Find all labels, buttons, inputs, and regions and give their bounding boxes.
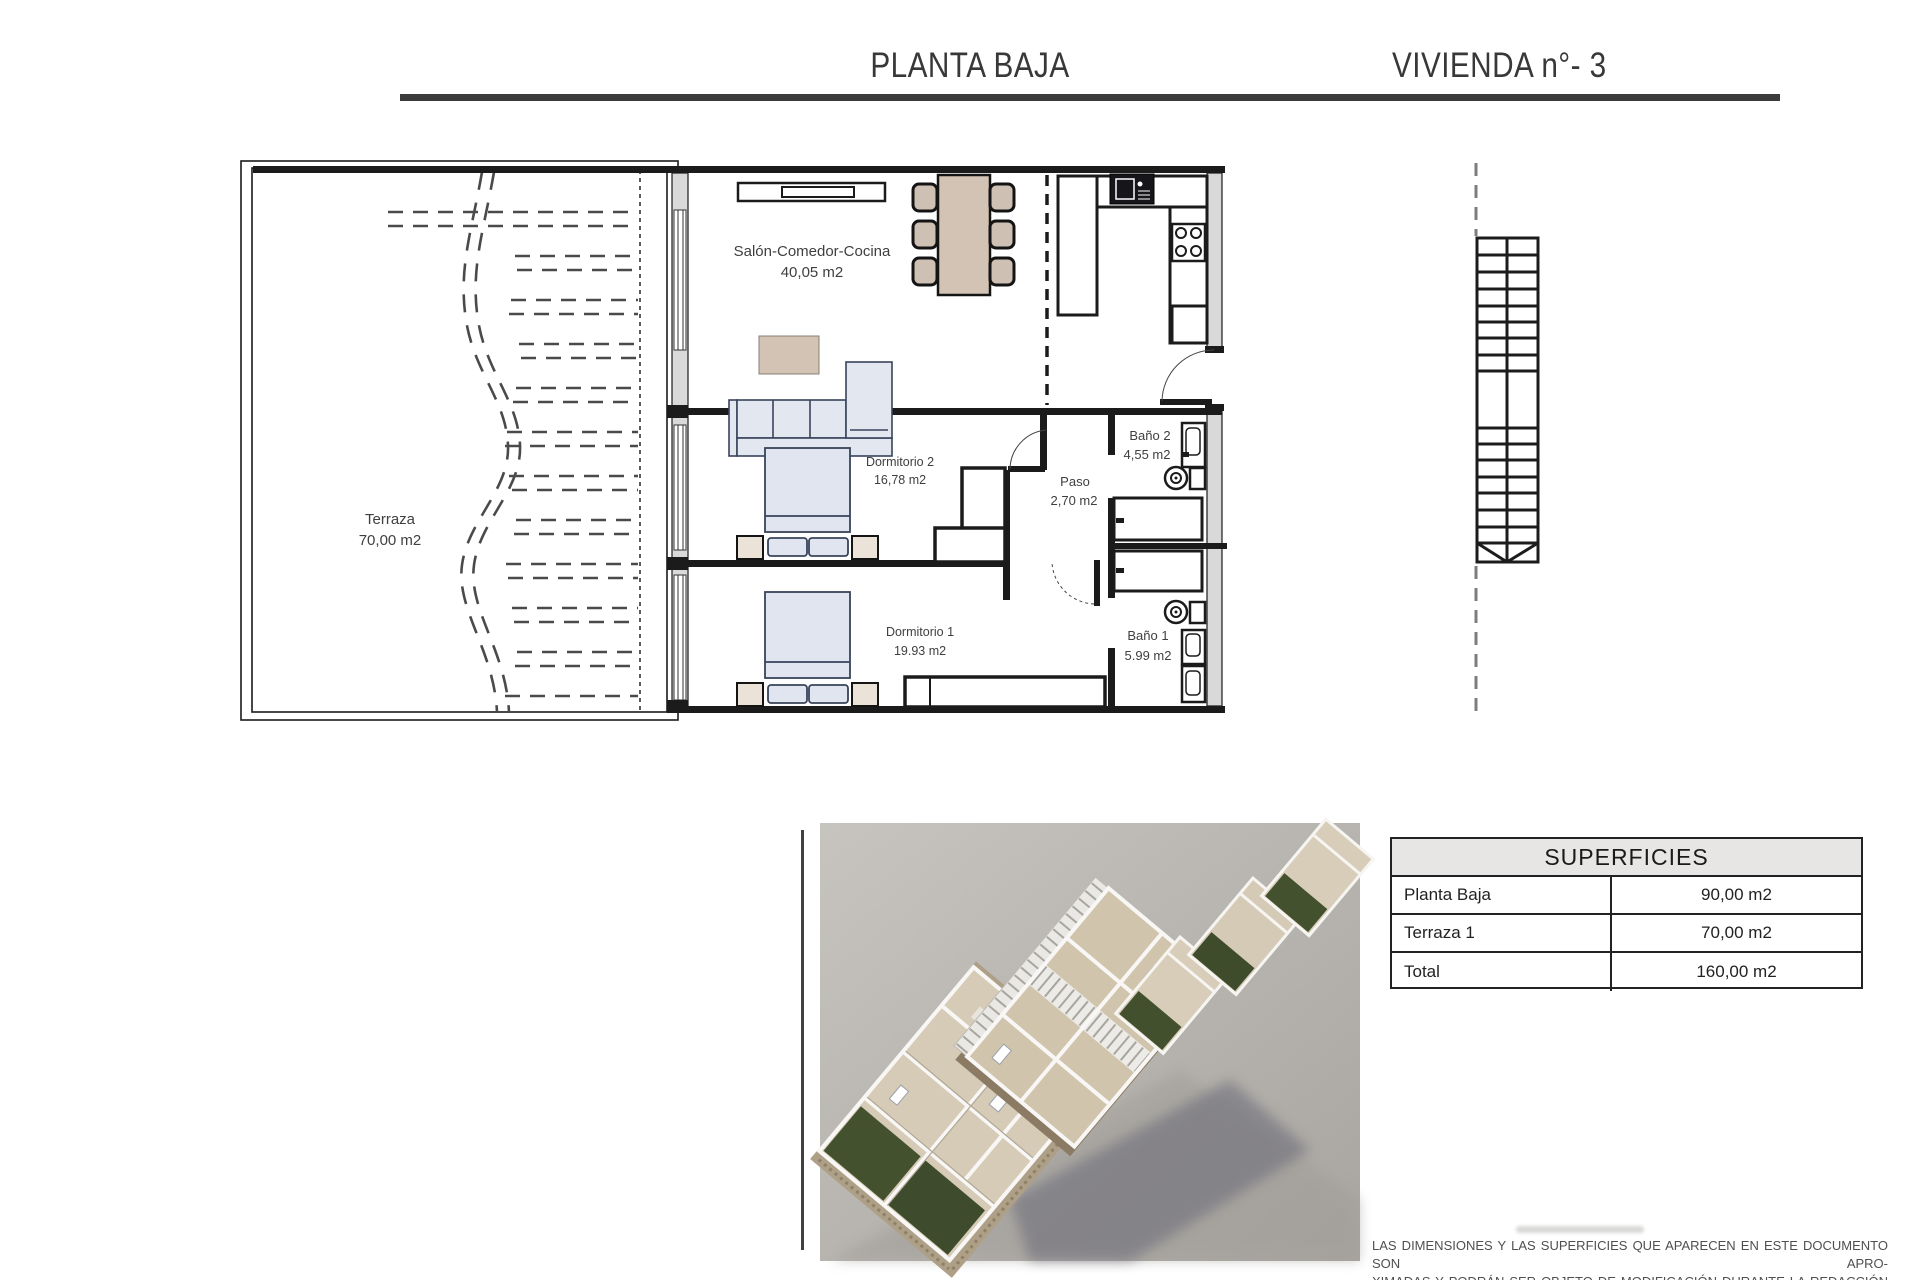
dining-table — [938, 175, 990, 295]
render-left-rule — [801, 830, 804, 1250]
dormitorio2-door — [1008, 466, 1045, 472]
kitchen-door — [1160, 399, 1212, 405]
terraza-room: Terraza 70,00 m2 — [241, 161, 678, 720]
table-row: Planta Baja 90,00 m2 — [1392, 877, 1861, 915]
table-row: Terraza 1 70,00 m2 — [1392, 915, 1861, 953]
disclaimer-line: LAS DIMENSIONES Y LAS SUPERFICIES QUE AP… — [1372, 1237, 1888, 1273]
faded-text-artifact — [1516, 1226, 1644, 1233]
render-illustration — [810, 796, 1373, 1278]
table-row: Total 160,00 m2 — [1392, 953, 1861, 991]
row-label: Planta Baja — [1392, 877, 1612, 913]
window-left-facade — [674, 210, 686, 700]
nightstand — [737, 536, 763, 559]
sofa — [729, 362, 892, 456]
coffee-table — [759, 336, 819, 374]
bano2-label: Baño 2 — [1129, 428, 1170, 443]
dormitorio1-room: Dormitorio 1 19.93 m2 — [737, 592, 1105, 707]
floor-plan-drawing: Terraza 70,00 m2 — [0, 0, 1920, 1280]
toilet-bano2 — [1165, 467, 1205, 489]
disclaimer-text: LAS DIMENSIONES Y LAS SUPERFICIES QUE AP… — [1372, 1237, 1888, 1280]
stove — [1172, 224, 1205, 261]
row-value: 70,00 m2 — [1612, 915, 1861, 951]
dormitorio2-label: Dormitorio 2 — [866, 455, 934, 469]
salon-label: Salón-Comedor-Cocina — [734, 243, 891, 260]
wardrobe-dormitorio1 — [905, 677, 1105, 707]
toilet-bano1 — [1165, 601, 1205, 623]
bano2-area: 4,55 m2 — [1124, 447, 1171, 462]
dormitorio1-door — [1094, 560, 1100, 606]
terraza-label: Terraza — [365, 511, 416, 528]
paso-label: Paso — [1060, 474, 1090, 489]
dormitorio2-area: 16,78 m2 — [874, 473, 926, 487]
bano1-label: Baño 1 — [1127, 628, 1168, 643]
salon-area: 40,05 m2 — [781, 264, 844, 281]
vanity-bano2 — [1182, 423, 1205, 467]
dormitorio1-area: 19.93 m2 — [894, 644, 946, 658]
paso-area: 2,70 m2 — [1051, 493, 1098, 508]
row-label: Terraza 1 — [1392, 915, 1612, 951]
superficies-table: SUPERFICIES Planta Baja 90,00 m2 Terraza… — [1390, 837, 1863, 989]
bano2-room: Baño 2 4,55 m2 — [1124, 423, 1205, 489]
bed-dormitorio2 — [737, 448, 878, 559]
superficies-table-title: SUPERFICIES — [1392, 839, 1861, 877]
bano1-area: 5.99 m2 — [1125, 648, 1172, 663]
paso-corridor: Paso 2,70 m2 — [1051, 474, 1100, 606]
row-label: Total — [1392, 953, 1612, 991]
nightstand — [852, 683, 878, 706]
terraza-area: 70,00 m2 — [359, 532, 422, 549]
row-value: 90,00 m2 — [1612, 877, 1861, 913]
kitchen-sink — [1110, 174, 1154, 204]
bed-dormitorio1 — [737, 592, 878, 706]
wardrobe-dormitorio2 — [935, 468, 1005, 562]
plan-document-page: PLANTA BAJA VIVIENDA n°- 3 — [0, 0, 1920, 1280]
vanity-bano1 — [1182, 630, 1205, 702]
disclaimer-line: XIMADAS Y PODRÁN SER OBJETO DE MODIFICAC… — [1372, 1273, 1888, 1280]
dormitorio1-label: Dormitorio 1 — [886, 625, 954, 639]
bano1-room: Baño 1 5.99 m2 — [1125, 601, 1205, 702]
nightstand — [737, 683, 763, 706]
row-value: 160,00 m2 — [1612, 953, 1861, 991]
stairs-diagram — [1476, 163, 1538, 716]
nightstand — [852, 536, 878, 559]
